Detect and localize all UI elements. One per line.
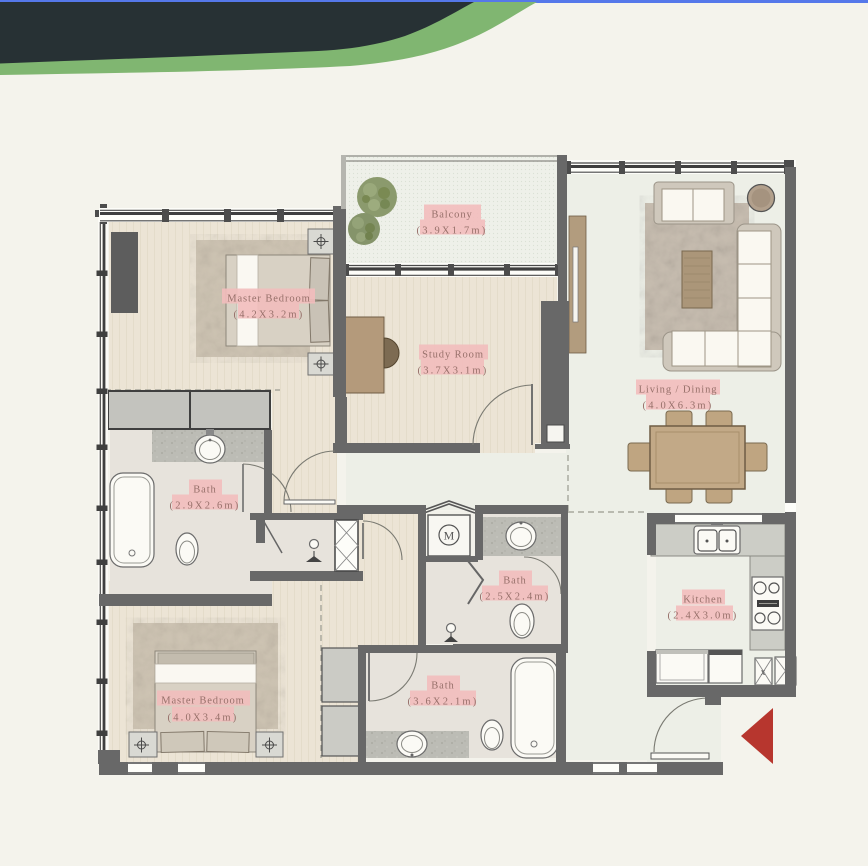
svg-text:Living / Dining: Living / Dining [639,385,718,396]
svg-text:(2.5X2.4m): (2.5X2.4m) [480,592,551,603]
svg-text:Study Room: Study Room [422,350,484,361]
svg-text:Master Bedroom: Master Bedroom [161,696,244,707]
svg-text:(2.4X3.0m): (2.4X3.0m) [668,611,739,622]
svg-text:Bath: Bath [431,681,454,692]
svg-text:Kitchen: Kitchen [683,595,723,606]
svg-text:Balcony: Balcony [431,210,472,221]
svg-text:x: x [761,667,766,677]
svg-text:(2.9X2.6m): (2.9X2.6m) [170,501,241,512]
svg-text:(4.0X6.3m): (4.0X6.3m) [643,401,714,412]
svg-text:(3.6X2.1m): (3.6X2.1m) [408,697,479,708]
svg-text:Master Bedroom: Master Bedroom [227,294,310,305]
svg-text:(3.7X3.1m): (3.7X3.1m) [418,366,489,377]
svg-text:M: M [444,529,455,543]
svg-text:Bath: Bath [193,485,216,496]
svg-text:(3.9X1.7m): (3.9X1.7m) [417,226,488,237]
svg-text:Bath: Bath [503,576,526,587]
svg-text:(4.0X3.4m): (4.0X3.4m) [168,713,239,724]
svg-text:(4.2X3.2m): (4.2X3.2m) [234,310,305,321]
